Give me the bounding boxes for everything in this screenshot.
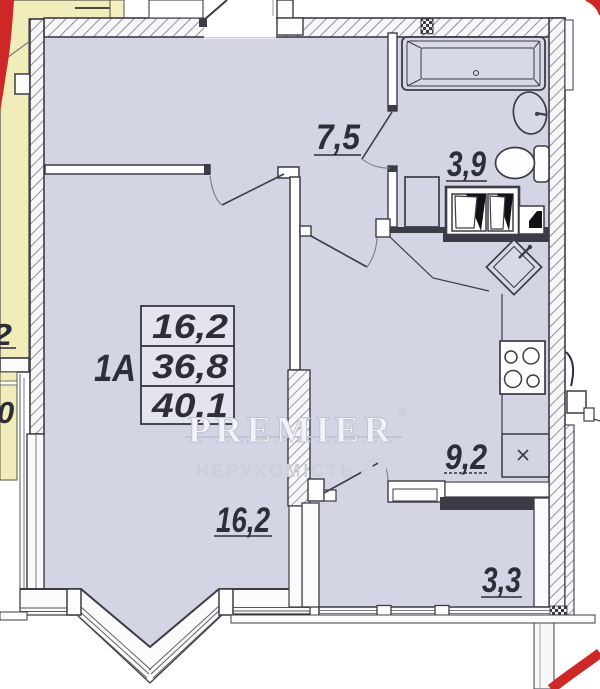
svg-text:16,2: 16,2: [216, 501, 270, 540]
svg-text:2: 2: [0, 317, 12, 352]
svg-text:1A: 1A: [94, 348, 136, 390]
svg-text:3,3: 3,3: [482, 561, 521, 600]
svg-text:0: 0: [0, 395, 14, 430]
svg-text:®: ®: [398, 405, 408, 420]
svg-text:16,2: 16,2: [152, 308, 228, 346]
svg-text:36,8: 36,8: [152, 348, 228, 386]
svg-text:PREMIER: PREMIER: [188, 410, 394, 451]
svg-text:3,9: 3,9: [447, 145, 486, 184]
svg-text:9,2: 9,2: [445, 438, 487, 477]
svg-text:НЕРУХОМІСТЬ: НЕРУХОМІСТЬ: [196, 461, 356, 481]
svg-text:7,5: 7,5: [316, 118, 360, 157]
